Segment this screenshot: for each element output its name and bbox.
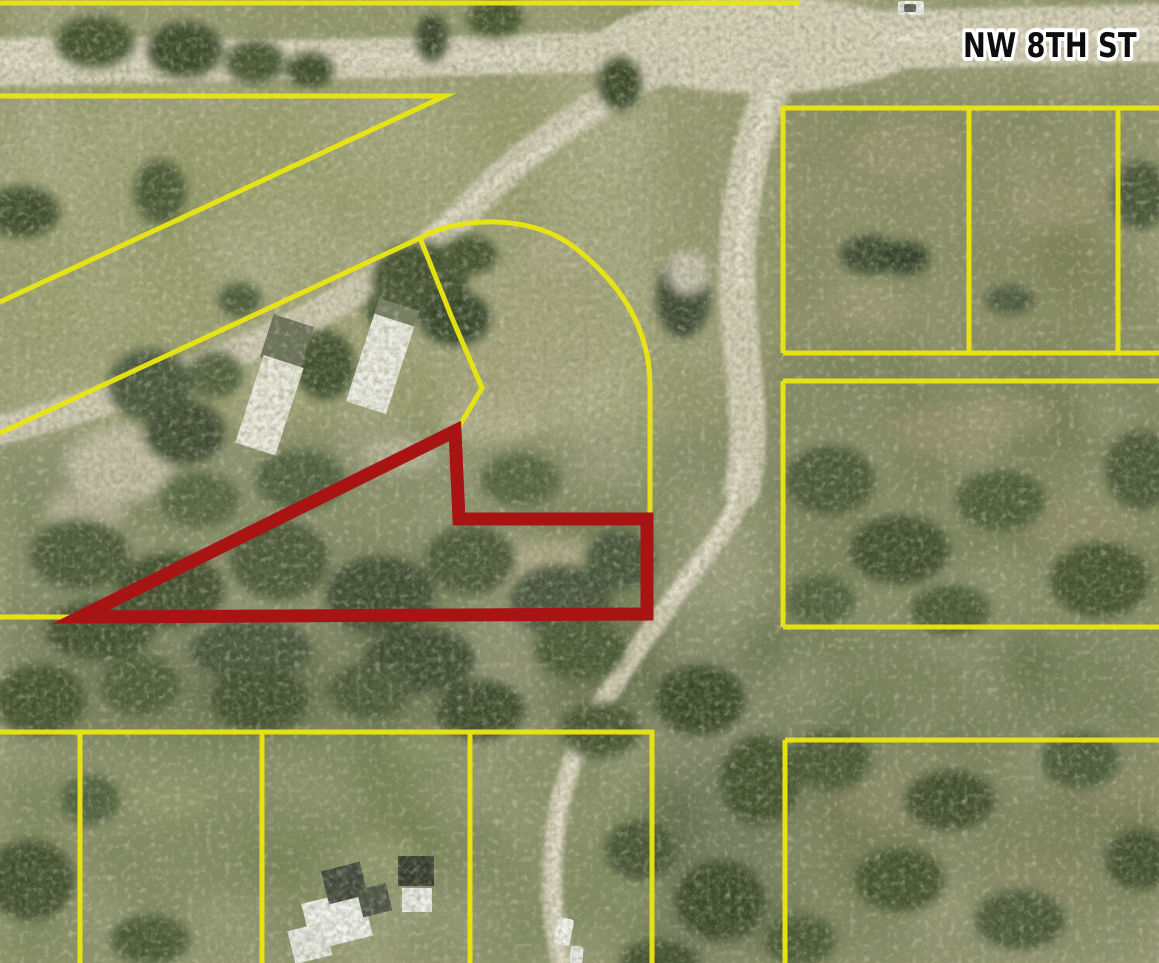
grain-texture-light <box>0 0 1159 963</box>
aerial-map-image[interactable]: NW 8TH ST NW 8TH ST <box>0 0 1159 963</box>
street-label: NW 8TH ST NW 8TH ST <box>963 26 1137 66</box>
aerial-map-view[interactable]: NW 8TH ST NW 8TH ST <box>0 0 1159 963</box>
street-label-text: NW 8TH ST <box>963 26 1137 66</box>
